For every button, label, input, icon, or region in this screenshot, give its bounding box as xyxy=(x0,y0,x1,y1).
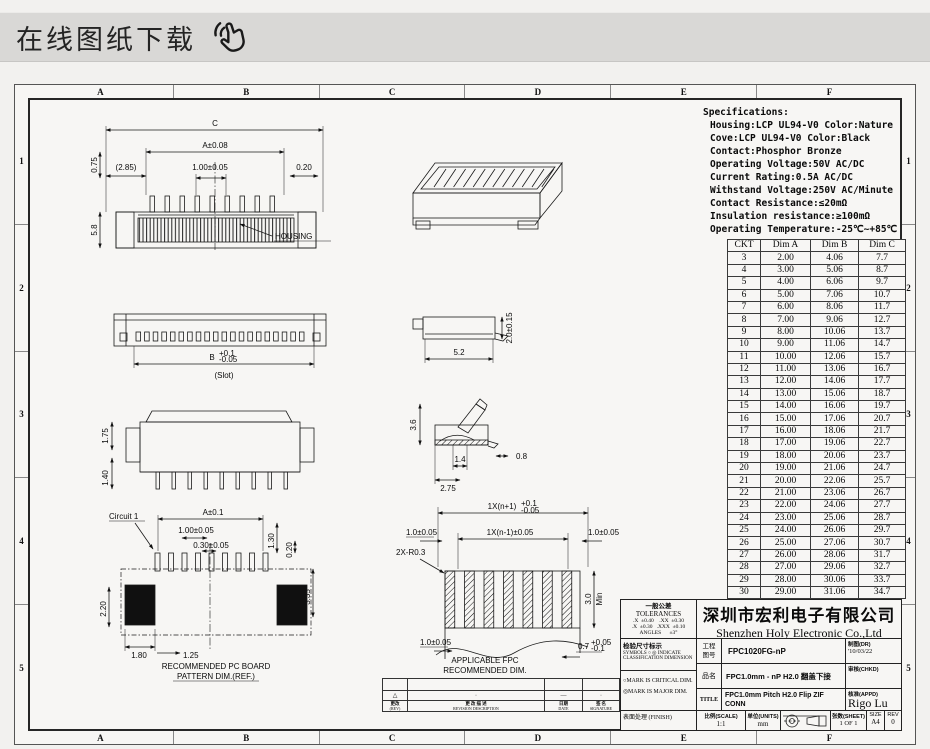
dim-c-cell: 23.7 xyxy=(859,450,906,462)
specification-line: Withstand Voltage:250V AC/Minute xyxy=(703,184,918,197)
dim-a-cell: 8.00 xyxy=(761,326,811,338)
approver-signature: Rigo Lu xyxy=(848,696,899,711)
ckt-cell: 22 xyxy=(728,487,761,499)
dim-b-cell: 19.06 xyxy=(811,438,859,450)
drawing-number: FPC1020FG-nP xyxy=(728,647,786,656)
specification-line: Operating Voltage:50V AC/DC xyxy=(703,158,918,171)
dim-label: 1.25 xyxy=(183,651,199,660)
table-header-cell: CKT xyxy=(728,240,761,252)
dim-c-cell: 14.7 xyxy=(859,339,906,351)
dim-label: Min xyxy=(595,593,604,606)
dim-a-cell: 14.00 xyxy=(761,401,811,413)
ckt-cell: 6 xyxy=(728,289,761,301)
circuit-label: Circuit 1 xyxy=(109,512,139,521)
view-caption: PATTERN DIM.(REF.) xyxy=(177,672,255,681)
dim-a-cell: 15.00 xyxy=(761,413,811,425)
size-cell: SIZE A4 xyxy=(866,710,885,731)
dim-c-cell: 16.7 xyxy=(859,363,906,375)
dim-b-cell: 14.06 xyxy=(811,376,859,388)
table-header-cell: Dim C xyxy=(859,240,906,252)
grid-number: 2 xyxy=(15,225,28,352)
title-value-cell: FPC1.0mm Pitch H2.0 Flip ZIF CONN xyxy=(721,688,846,711)
dim-c-cell: 25.7 xyxy=(859,475,906,487)
fpc-caption: APPLICABLE FPC RECOMMENDED DIM. xyxy=(443,656,527,675)
table-row: 20 19.00 21.06 24.7 xyxy=(728,463,906,475)
partno-value-cell: FPC1020FG-nP xyxy=(721,638,846,664)
chkd-label: 审核(CHKD) xyxy=(848,665,899,673)
dim-b-cell: 11.06 xyxy=(811,339,859,351)
product-name: FPC1.0mm - nP H2.0 翻盖下接 xyxy=(726,671,831,682)
isometric-part xyxy=(413,163,562,229)
title-block: 一般公差 TOLERANCES .X ±0.40 .XX ±0.30 .X ±0… xyxy=(620,599,902,731)
view-caption: RECOMMENDED PC BOARD xyxy=(162,662,271,671)
dim-a-cell: 29.00 xyxy=(761,586,811,598)
dim-b-cell: 10.06 xyxy=(811,326,859,338)
grid-letter: C xyxy=(320,731,466,744)
dim-a-cell: 3.00 xyxy=(761,264,811,276)
dim-c-cell: 19.7 xyxy=(859,401,906,413)
ckt-cell: 14 xyxy=(728,388,761,400)
major-dim-note: ◎MARK IS MAJOR DIM. xyxy=(623,687,694,698)
dim-a-cell: 22.00 xyxy=(761,500,811,512)
table-row: 6 5.00 7.06 10.7 xyxy=(728,289,906,301)
tolerance-line: ANGLES ±3° xyxy=(621,630,696,636)
dim-c-cell: 29.7 xyxy=(859,524,906,536)
dim-b-cell: 21.06 xyxy=(811,463,859,475)
chkd-cell: 审核(CHKD) xyxy=(845,663,902,689)
rear-view-part xyxy=(126,411,314,489)
pcb-part xyxy=(121,543,311,651)
revision-col-description: 更 改 描 述REVISION DESCRIPTION xyxy=(407,700,545,712)
inspection-zh: 检验尺寸标示 xyxy=(623,640,694,650)
table-row: 17 16.00 18.06 21.7 xyxy=(728,425,906,437)
title-label-cell: TITLE xyxy=(696,688,722,711)
dim-b-cell: 15.06 xyxy=(811,388,859,400)
ckt-cell: 30 xyxy=(728,586,761,598)
table-header-cell: Dim A xyxy=(761,240,811,252)
table-row: 3 2.00 4.06 7.7 xyxy=(728,252,906,264)
specification-line: Cove:LCP UL94-V0 Color:Black xyxy=(703,132,918,145)
table-row: 4 3.00 5.06 8.7 xyxy=(728,264,906,276)
table-row: 10 9.00 11.06 14.7 xyxy=(728,339,906,351)
dim-label: 0.75 xyxy=(90,157,99,173)
table-row: 5 4.00 6.06 9.7 xyxy=(728,277,906,289)
dim-label: 2.75 xyxy=(440,484,456,493)
isometric-view xyxy=(390,133,615,238)
dim-label: 3.0 xyxy=(584,593,593,605)
dim-a-cell: 17.00 xyxy=(761,438,811,450)
dim-a-cell: 11.00 xyxy=(761,363,811,375)
dim-c-cell: 27.7 xyxy=(859,500,906,512)
tolerances-zh: 一般公差 xyxy=(621,600,696,610)
dim-label: 2X-R0.3 xyxy=(396,548,426,557)
dim-label: 1.4 xyxy=(454,455,466,464)
table-row: 18 17.00 19.06 22.7 xyxy=(728,438,906,450)
size-value: A4 xyxy=(867,718,884,726)
dim-a-cell: 13.00 xyxy=(761,388,811,400)
dim-c-cell: 18.7 xyxy=(859,388,906,400)
dim-b-cell: 25.06 xyxy=(811,512,859,524)
dim-label: 3.6 xyxy=(409,419,418,431)
grid-number: 5 xyxy=(902,605,915,731)
dim-a-cell: 19.00 xyxy=(761,463,811,475)
specification-line: Operating Temperature:-25℃~+85℃ xyxy=(703,223,918,236)
table-row: 30 29.00 31.06 34.7 xyxy=(728,586,906,598)
dim-b-cell: 31.06 xyxy=(811,586,859,598)
units-cell: 单位(UNITS) mm xyxy=(745,710,781,731)
ckt-cell: 16 xyxy=(728,413,761,425)
dim-b-cell: 26.06 xyxy=(811,524,859,536)
view-caption: APPLICABLE FPC xyxy=(451,656,518,665)
dim-label: 1X(n-1)±0.05 xyxy=(487,528,534,537)
ckt-cell: 4 xyxy=(728,264,761,276)
table-row: 8 7.00 9.06 12.7 xyxy=(728,314,906,326)
specifications-block: Specifications: Housing:LCP UL94-V0 Colo… xyxy=(703,106,918,236)
closed-part xyxy=(413,317,508,341)
open-side-view: 3.6 0.8 1.4 2.75 xyxy=(398,392,618,507)
table-row: 28 27.00 29.06 32.7 xyxy=(728,562,906,574)
company-name-zh: 深圳市宏利电子有限公司 xyxy=(697,602,901,626)
rear-view-dimensions: 1.75 1.40 xyxy=(101,422,112,489)
table-row: 26 25.00 27.06 30.7 xyxy=(728,537,906,549)
dim-c-cell: 21.7 xyxy=(859,425,906,437)
grid-letter: F xyxy=(757,85,902,98)
specification-line: Current Rating:0.5A AC/DC xyxy=(703,171,918,184)
partno-label-cell: 工程图号 xyxy=(696,638,722,664)
dim-c-cell: 31.7 xyxy=(859,549,906,561)
ckt-cell: 3 xyxy=(728,252,761,264)
dim-a-cell: 23.00 xyxy=(761,512,811,524)
bottom-view-part xyxy=(114,314,326,346)
finish-cell: 表面处理 (FINISH) xyxy=(620,710,697,731)
dim-tol: -0.1 xyxy=(591,644,605,653)
dim-a-cell: 4.00 xyxy=(761,277,811,289)
dim-b-cell: 20.06 xyxy=(811,450,859,462)
grid-letter: D xyxy=(465,85,611,98)
header-bar: 在线图纸下载 xyxy=(0,12,930,62)
page-title[interactable]: 在线图纸下载 xyxy=(16,18,196,57)
dim-b-cell: 7.06 xyxy=(811,289,859,301)
dim-c-cell: 12.7 xyxy=(859,314,906,326)
dim-c-cell: 32.7 xyxy=(859,562,906,574)
grid-number: 3 xyxy=(15,352,28,479)
ckt-cell: 28 xyxy=(728,562,761,574)
grid-number: 1 xyxy=(15,98,28,225)
dim-label: 0.20 xyxy=(285,542,294,558)
open-part xyxy=(435,399,498,448)
table-row: 25 24.00 26.06 29.7 xyxy=(728,524,906,536)
rear-view: 1.75 1.40 xyxy=(92,398,322,503)
table-row: 16 15.00 17.06 20.7 xyxy=(728,413,906,425)
table-row: 24 23.00 25.06 28.7 xyxy=(728,512,906,524)
dim-a-cell: 18.00 xyxy=(761,450,811,462)
dim-a-cell: 16.00 xyxy=(761,425,811,437)
dim-b-cell: 9.06 xyxy=(811,314,859,326)
fpc-view: 1X(n+1) +0.1 -0.05 1X(n-1)±0.05 1.0±0.05… xyxy=(390,493,620,678)
dim-c-cell: 13.7 xyxy=(859,326,906,338)
grid-letter: B xyxy=(174,85,320,98)
bottom-view: B +0.1 -0.05 (Slot) xyxy=(98,292,343,387)
dr-cell: 制图(DR) '10/03/22 xyxy=(845,638,902,664)
table-row: 23 22.00 24.06 27.7 xyxy=(728,500,906,512)
revision-table: △ · — · 更改(REV) 更 改 描 述REVISION DESCRIPT… xyxy=(383,679,620,712)
dim-b-cell: 22.06 xyxy=(811,475,859,487)
dim-c-cell: 26.7 xyxy=(859,487,906,499)
grid-numbers-left: 12345 xyxy=(15,98,28,731)
housing-label: HOUSING xyxy=(275,232,312,241)
grid-letter: A xyxy=(28,85,174,98)
revision-col-signature: 签 名SIGNATURE xyxy=(582,700,620,712)
dim-a-cell: 10.00 xyxy=(761,351,811,363)
dim-label: 0.30±0.05 xyxy=(193,541,229,550)
ckt-cell: 12 xyxy=(728,363,761,375)
specification-line: Housing:LCP UL94-V0 Color:Nature xyxy=(703,119,918,132)
table-row: 7 6.00 8.06 11.7 xyxy=(728,301,906,313)
dim-label: 0.20 xyxy=(296,163,312,172)
grid-letter: B xyxy=(174,731,320,744)
dim-a-cell: 25.00 xyxy=(761,537,811,549)
ckt-cell: 15 xyxy=(728,401,761,413)
tolerances-en: TOLERANCES xyxy=(621,610,696,618)
revision-col-rev: 更改(REV) xyxy=(382,700,408,712)
grid-number: 4 xyxy=(15,478,28,605)
closed-side-view: 5.2 2.0±0.15 xyxy=(398,297,618,392)
appd-cell: 核准(APPD) Rigo Lu xyxy=(845,688,902,711)
dim-label: 1.0±0.05 xyxy=(420,638,452,647)
dim-label: 0.8 xyxy=(516,452,528,461)
dim-b-cell: 12.06 xyxy=(811,351,859,363)
dim-label: 1.0±0.05 xyxy=(588,528,620,537)
dim-b-cell: 30.06 xyxy=(811,574,859,586)
dim-label: A±0.08 xyxy=(202,141,228,150)
ckt-cell: 11 xyxy=(728,351,761,363)
company-cell: 深圳市宏利电子有限公司 Shenzhen Holy Electronic Co.… xyxy=(696,599,902,639)
dim-a-cell: 20.00 xyxy=(761,475,811,487)
scale-value: 1:1 xyxy=(697,720,745,728)
dim-c-cell: 8.7 xyxy=(859,264,906,276)
dim-c-cell: 28.7 xyxy=(859,512,906,524)
finish-label: 表面处理 (FINISH) xyxy=(623,715,672,721)
dim-b-cell: 27.06 xyxy=(811,537,859,549)
dim-b-cell: 8.06 xyxy=(811,301,859,313)
ckt-cell: 27 xyxy=(728,549,761,561)
scale-cell: 比例(SCALE) 1:1 xyxy=(696,710,746,731)
dim-tol: -0.05 xyxy=(219,355,238,364)
dim-label: 2.20 xyxy=(99,601,108,617)
pcb-dimensions: Circuit 1 A±0.1 1.00±0.05 0.30±0.05 1.30… xyxy=(99,508,313,660)
tolerances-cell: 一般公差 TOLERANCES .X ±0.40 .XX ±0.30 .X ±0… xyxy=(620,599,697,639)
ckt-cell: 26 xyxy=(728,537,761,549)
dim-label: 5.8 xyxy=(90,224,99,236)
dim-c-cell: 20.7 xyxy=(859,413,906,425)
dim-b-cell: 29.06 xyxy=(811,562,859,574)
dim-c-cell: 15.7 xyxy=(859,351,906,363)
revision-col-date: 日期DATE xyxy=(544,700,583,712)
dim-label: 0.7 xyxy=(578,642,590,651)
dim-c-cell: 33.7 xyxy=(859,574,906,586)
dim-label: C xyxy=(212,119,218,128)
dim-c-cell: 34.7 xyxy=(859,586,906,598)
product-label-cell: 品名 xyxy=(696,663,722,689)
rev-value: 0 xyxy=(885,718,901,726)
ckt-cell: 8 xyxy=(728,314,761,326)
dim-b-cell: 16.06 xyxy=(811,401,859,413)
fpc-part xyxy=(436,571,588,659)
ckt-cell: 13 xyxy=(728,376,761,388)
dim-c-cell: 11.7 xyxy=(859,301,906,313)
table-row: 15 14.00 16.06 19.7 xyxy=(728,401,906,413)
dim-b-cell: 13.06 xyxy=(811,363,859,375)
dim-label: 1.40 xyxy=(101,470,110,486)
ckt-cell: 23 xyxy=(728,500,761,512)
view-caption: RECOMMENDED DIM. xyxy=(443,666,527,675)
table-row: 21 20.00 22.06 25.7 xyxy=(728,475,906,487)
ckt-cell: 21 xyxy=(728,475,761,487)
dim-label: 1X(n+1) xyxy=(488,502,517,511)
dim-label: 5.2 xyxy=(453,348,465,357)
dim-label: B xyxy=(209,353,214,362)
open-dimensions: 3.6 0.8 1.4 2.75 xyxy=(409,404,528,493)
third-angle-projection-icon xyxy=(783,713,829,729)
ckt-cell: 18 xyxy=(728,438,761,450)
grid-letter: E xyxy=(611,731,757,744)
dim-label: 1.75 xyxy=(101,428,110,444)
table-row: 19 18.00 20.06 23.7 xyxy=(728,450,906,462)
grid-letter: D xyxy=(465,731,611,744)
table-row: 12 11.00 13.06 16.7 xyxy=(728,363,906,375)
inspection-cell: 检验尺寸标示 SYMBOLS ○ ◎ INDICATE CLASSIFICATI… xyxy=(620,638,697,671)
dim-a-cell: 5.00 xyxy=(761,289,811,301)
dim-b-cell: 28.06 xyxy=(811,549,859,561)
units-value: mm xyxy=(746,720,780,728)
ckt-cell: 9 xyxy=(728,326,761,338)
table-row: 22 21.00 23.06 26.7 xyxy=(728,487,906,499)
pcb-pattern-view: Circuit 1 A±0.1 1.00±0.05 0.30±0.05 1.30… xyxy=(83,503,338,683)
dim-tol: -0.05 xyxy=(521,506,540,515)
grid-letter: C xyxy=(320,85,466,98)
front-view: C A±0.08 (2.85) 1.00±0.05 0.20 0.75 5.8 xyxy=(88,100,343,250)
table-header-cell: Dim B xyxy=(811,240,859,252)
dr-date: '10/03/22 xyxy=(848,648,899,655)
table-row: 14 13.00 15.06 18.7 xyxy=(728,388,906,400)
dim-label: (2.85) xyxy=(116,163,137,172)
dim-a-cell: 21.00 xyxy=(761,487,811,499)
dim-a-cell: 2.00 xyxy=(761,252,811,264)
ckt-cell: 7 xyxy=(728,301,761,313)
specifications-title: Specifications: xyxy=(703,106,918,119)
dim-label: A±0.1 xyxy=(203,508,224,517)
dim-c-cell: 22.7 xyxy=(859,438,906,450)
pcb-caption: RECOMMENDED PC BOARD PATTERN DIM.(REF.) xyxy=(162,662,271,681)
projection-cell xyxy=(780,710,831,731)
table-row: 13 12.00 14.06 17.7 xyxy=(728,376,906,388)
dim-b-cell: 17.06 xyxy=(811,413,859,425)
dim-a-cell: 12.00 xyxy=(761,376,811,388)
dim-c-cell: 30.7 xyxy=(859,537,906,549)
dim-a-cell: 24.00 xyxy=(761,524,811,536)
grid-letters-bottom: ABCDEF xyxy=(28,731,902,744)
dim-label: 1.00±0.05 xyxy=(192,163,228,172)
dim-label: 1.30 xyxy=(267,533,276,549)
grid-letter: F xyxy=(757,731,902,744)
ckt-cell: 19 xyxy=(728,450,761,462)
dim-label: 1.80 xyxy=(131,651,147,660)
dim-a-cell: 26.00 xyxy=(761,549,811,561)
critical-dim-note: ○MARK IS CRITICAL DIM. xyxy=(623,676,694,687)
ckt-cell: 5 xyxy=(728,277,761,289)
dim-b-cell: 5.06 xyxy=(811,264,859,276)
bottom-view-dimensions: B +0.1 -0.05 (Slot) xyxy=(134,346,314,380)
grid-letter: E xyxy=(611,85,757,98)
drawing-title-line2: CONN xyxy=(725,700,842,709)
table-row: 9 8.00 10.06 13.7 xyxy=(728,326,906,338)
click-hand-icon[interactable] xyxy=(210,17,256,57)
ckt-cell: 20 xyxy=(728,463,761,475)
specification-line: Insulation resistance:≥100mΩ xyxy=(703,210,918,223)
dim-a-cell: 27.00 xyxy=(761,562,811,574)
ckt-cell: 10 xyxy=(728,339,761,351)
grid-number: 5 xyxy=(15,605,28,731)
dim-a-cell: 28.00 xyxy=(761,574,811,586)
dim-label: 1.0±0.05 xyxy=(406,528,438,537)
dim-c-cell: 7.7 xyxy=(859,252,906,264)
product-value-cell: FPC1.0mm - nP H2.0 翻盖下接 xyxy=(721,663,846,689)
table-row: 29 28.00 30.06 33.7 xyxy=(728,574,906,586)
ckt-cell: 24 xyxy=(728,512,761,524)
dim-label: (Slot) xyxy=(214,371,233,380)
grid-letters-top: ABCDEF xyxy=(28,85,902,98)
page: 在线图纸下载 ABCDEF ABCDEF 12345 12345 Specifi… xyxy=(0,0,930,749)
sheet-value: 1 OF 1 xyxy=(831,720,866,727)
dim-c-cell: 24.7 xyxy=(859,463,906,475)
dim-c-cell: 17.7 xyxy=(859,376,906,388)
table-row: 27 26.00 28.06 31.7 xyxy=(728,549,906,561)
ckt-cell: 29 xyxy=(728,574,761,586)
rev-cell: REV 0 xyxy=(884,710,902,731)
dim-b-cell: 6.06 xyxy=(811,277,859,289)
closed-dimensions: 5.2 2.0±0.15 xyxy=(425,312,514,363)
drawing-title-line1: FPC1.0mm Pitch H2.0 Flip ZIF xyxy=(725,691,842,700)
dim-a-cell: 9.00 xyxy=(761,339,811,351)
specification-line: Contact Resistance:≤20mΩ xyxy=(703,197,918,210)
dr-label: 制图(DR) xyxy=(848,640,899,648)
ckt-cell: 25 xyxy=(728,524,761,536)
dim-b-cell: 24.06 xyxy=(811,500,859,512)
dim-label: 2.0±0.15 xyxy=(505,312,514,344)
dim-b-cell: 4.06 xyxy=(811,252,859,264)
dim-label: 1.00±0.05 xyxy=(178,526,214,535)
grid-letter: A xyxy=(28,731,174,744)
dimension-table: CKTDim ADim BDim C 3 2.00 4.06 7.7 4 3.0… xyxy=(727,239,906,599)
ckt-cell: 17 xyxy=(728,425,761,437)
marks-cell: ○MARK IS CRITICAL DIM. ◎MARK IS MAJOR DI… xyxy=(620,670,697,711)
dim-a-cell: 6.00 xyxy=(761,301,811,313)
sheet-cell: 张数(SHEET) 1 OF 1 xyxy=(830,710,867,731)
dim-b-cell: 18.06 xyxy=(811,425,859,437)
specification-line: Contact:Phosphor Bronze xyxy=(703,145,918,158)
dim-c-cell: 9.7 xyxy=(859,277,906,289)
table-row: 11 10.00 12.06 15.7 xyxy=(728,351,906,363)
dim-a-cell: 7.00 xyxy=(761,314,811,326)
inspection-line: CLASSIFICATION DIMENSION xyxy=(623,656,694,661)
dim-c-cell: 10.7 xyxy=(859,289,906,301)
dim-b-cell: 23.06 xyxy=(811,487,859,499)
